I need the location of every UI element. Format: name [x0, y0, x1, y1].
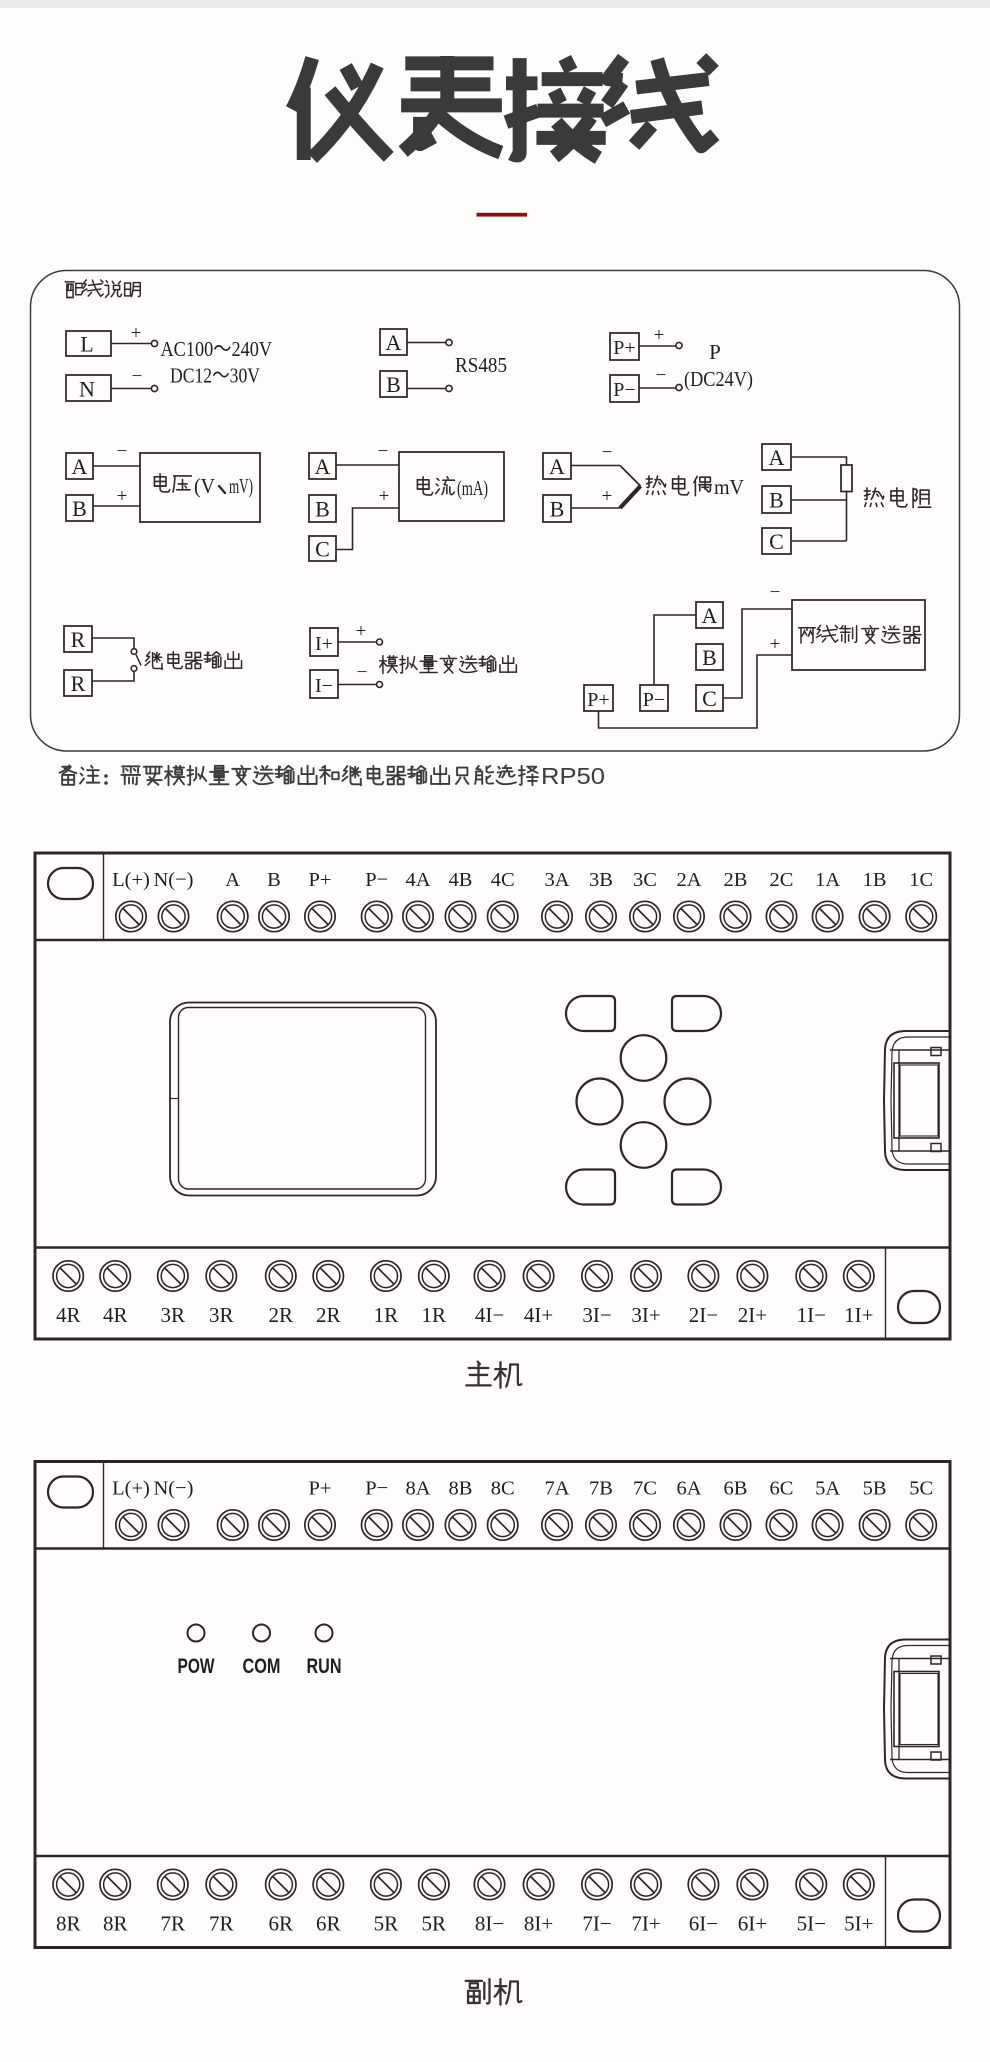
- svg-text:+: +: [131, 323, 142, 344]
- svg-text:5C: 5C: [909, 1478, 933, 1500]
- svg-text:2C: 2C: [770, 869, 794, 891]
- svg-text:2A: 2A: [676, 869, 701, 891]
- svg-text:L(+): L(+): [112, 1478, 150, 1500]
- svg-text:8I+: 8I+: [524, 1912, 553, 1936]
- svg-text:1I−: 1I−: [797, 1303, 826, 1327]
- svg-text:A: A: [386, 330, 402, 355]
- svg-text:−: −: [602, 442, 613, 463]
- svg-text:1A: 1A: [815, 869, 840, 891]
- svg-text:A: A: [72, 454, 88, 479]
- svg-text:3I−: 3I−: [582, 1303, 611, 1327]
- svg-text:COM: COM: [243, 1655, 281, 1678]
- svg-text:−: −: [117, 441, 128, 462]
- svg-text:5I+: 5I+: [844, 1912, 873, 1936]
- svg-text:2I+: 2I+: [738, 1303, 767, 1327]
- svg-text:A: A: [549, 454, 565, 479]
- svg-text:B: B: [769, 488, 784, 513]
- svg-text:4A: 4A: [405, 869, 430, 891]
- svg-text:+: +: [770, 634, 781, 655]
- svg-text:1R: 1R: [374, 1303, 399, 1327]
- svg-text:5R: 5R: [374, 1912, 399, 1936]
- svg-text:3I+: 3I+: [631, 1303, 660, 1327]
- svg-text:RUN: RUN: [307, 1655, 342, 1678]
- svg-text:−: −: [132, 366, 143, 387]
- svg-text:P+: P+: [613, 337, 635, 359]
- svg-text:B: B: [267, 869, 281, 891]
- svg-text:P−: P−: [613, 379, 635, 401]
- svg-text:RP50: RP50: [541, 763, 605, 789]
- svg-text:A: A: [225, 869, 240, 891]
- svg-text:4R: 4R: [103, 1303, 128, 1327]
- svg-text:3R: 3R: [161, 1303, 186, 1327]
- svg-text:1R: 1R: [422, 1303, 447, 1327]
- svg-text:3C: 3C: [633, 869, 657, 891]
- svg-text:5R: 5R: [422, 1912, 447, 1936]
- svg-text:(V: (V: [194, 474, 215, 498]
- svg-text:6B: 6B: [724, 1478, 748, 1500]
- svg-text:+: +: [602, 486, 613, 507]
- svg-text:(mA): (mA): [457, 476, 488, 500]
- svg-text:8R: 8R: [56, 1912, 81, 1936]
- svg-text:7C: 7C: [633, 1478, 657, 1500]
- svg-text:3B: 3B: [589, 869, 613, 891]
- svg-text:R: R: [71, 671, 86, 696]
- svg-text:5A: 5A: [815, 1478, 840, 1500]
- svg-text:A: A: [702, 603, 718, 628]
- svg-text:4I−: 4I−: [475, 1303, 504, 1327]
- svg-text:−: −: [378, 441, 389, 462]
- svg-text:AC100～240V: AC100～240V: [161, 337, 273, 361]
- svg-text:L: L: [80, 332, 93, 357]
- svg-text:2B: 2B: [724, 869, 748, 891]
- svg-text:−: −: [656, 365, 667, 386]
- svg-text:7I−: 7I−: [582, 1912, 611, 1936]
- svg-text:5I−: 5I−: [797, 1912, 826, 1936]
- svg-text:C: C: [769, 529, 784, 554]
- svg-text:+: +: [654, 325, 665, 346]
- svg-text:B: B: [72, 496, 87, 521]
- svg-text:B: B: [550, 497, 565, 522]
- svg-text:4B: 4B: [449, 869, 473, 891]
- svg-text:I+: I+: [315, 633, 333, 655]
- svg-text:6I−: 6I−: [689, 1912, 718, 1936]
- svg-text:1I+: 1I+: [844, 1303, 873, 1327]
- svg-text:4R: 4R: [56, 1303, 81, 1327]
- svg-text:3A: 3A: [544, 869, 569, 891]
- svg-text:6I+: 6I+: [738, 1912, 767, 1936]
- svg-text:P+: P+: [309, 1478, 332, 1500]
- svg-text:N(−): N(−): [153, 1478, 193, 1500]
- svg-text:−: −: [357, 662, 368, 683]
- svg-text:8R: 8R: [103, 1912, 128, 1936]
- svg-text:B: B: [315, 497, 330, 522]
- svg-text:N(−): N(−): [153, 869, 193, 891]
- svg-text:1C: 1C: [909, 869, 933, 891]
- svg-text:DC12～30V: DC12～30V: [170, 364, 260, 388]
- svg-text:POW: POW: [178, 1655, 215, 1678]
- svg-text:5B: 5B: [863, 1478, 887, 1500]
- svg-text:P−: P−: [365, 1478, 388, 1500]
- svg-text:mV): mV): [229, 474, 253, 498]
- svg-text:6R: 6R: [269, 1912, 294, 1936]
- svg-text:I−: I−: [315, 675, 333, 697]
- svg-text:2R: 2R: [269, 1303, 294, 1327]
- svg-text:6C: 6C: [770, 1478, 794, 1500]
- svg-text:R: R: [71, 627, 86, 652]
- svg-text:mV: mV: [714, 475, 744, 499]
- svg-text:P+: P+: [587, 689, 609, 711]
- svg-text:8I−: 8I−: [475, 1912, 504, 1936]
- svg-text:C: C: [702, 686, 717, 711]
- svg-text:B: B: [386, 372, 401, 397]
- svg-text:3R: 3R: [209, 1303, 234, 1327]
- svg-text:A: A: [769, 445, 785, 470]
- svg-text:7I+: 7I+: [631, 1912, 660, 1936]
- svg-text:P−: P−: [643, 689, 665, 711]
- svg-text:+: +: [117, 486, 128, 507]
- svg-text:RS485: RS485: [455, 353, 507, 377]
- svg-text:8C: 8C: [491, 1478, 515, 1500]
- svg-text:P: P: [709, 340, 721, 364]
- svg-text:2R: 2R: [316, 1303, 341, 1327]
- svg-text:6A: 6A: [676, 1478, 701, 1500]
- svg-text:2I−: 2I−: [689, 1303, 718, 1327]
- svg-text:P−: P−: [365, 869, 388, 891]
- svg-text:7R: 7R: [161, 1912, 186, 1936]
- svg-text:1B: 1B: [863, 869, 887, 891]
- svg-text:L(+): L(+): [112, 869, 150, 891]
- svg-text:+: +: [379, 486, 390, 507]
- svg-text:7A: 7A: [544, 1478, 569, 1500]
- svg-text:A: A: [315, 454, 331, 479]
- svg-text:6R: 6R: [316, 1912, 341, 1936]
- svg-text:7R: 7R: [209, 1912, 234, 1936]
- svg-text:4I+: 4I+: [524, 1303, 553, 1327]
- svg-text:8A: 8A: [405, 1478, 430, 1500]
- svg-text:+: +: [356, 621, 367, 642]
- svg-text:(DC24V): (DC24V): [684, 367, 753, 391]
- svg-text:8B: 8B: [449, 1478, 473, 1500]
- svg-text:C: C: [315, 537, 330, 562]
- svg-text:7B: 7B: [589, 1478, 613, 1500]
- svg-text:−: −: [770, 582, 781, 603]
- svg-text:P+: P+: [309, 869, 332, 891]
- svg-text:N: N: [79, 377, 95, 402]
- svg-text:4C: 4C: [491, 869, 515, 891]
- svg-text:B: B: [702, 645, 717, 670]
